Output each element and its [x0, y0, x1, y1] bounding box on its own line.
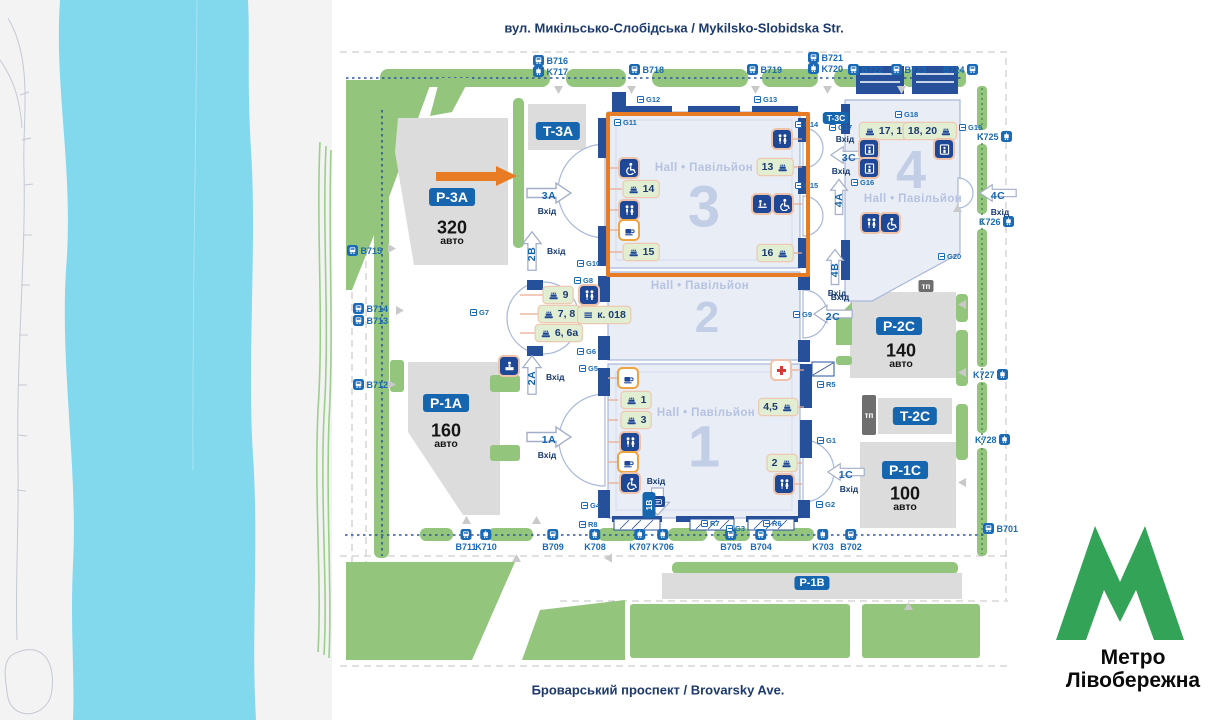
room-label: 6, 6а	[555, 327, 578, 339]
entrance-2c: 2C	[813, 303, 853, 330]
stop-label: K710	[475, 542, 497, 552]
gate-label: G4	[590, 501, 600, 510]
stop-label: B702	[840, 542, 862, 552]
stop-label: K708	[584, 542, 606, 552]
gate-icon	[581, 502, 588, 509]
stop-k717: K717	[533, 66, 568, 77]
room-4-5: 4,5	[759, 399, 797, 415]
gate-label: G5	[588, 364, 598, 373]
gate-label: G20	[947, 252, 961, 261]
highlight-arrow	[436, 166, 520, 186]
stop-k726: K726	[979, 216, 1014, 227]
banquet-hall-icon	[626, 414, 638, 426]
wc-icon	[775, 475, 793, 493]
room-k018: к. 018	[578, 307, 630, 323]
tram-stop-icon	[1001, 131, 1012, 142]
stop-b702: B702	[840, 529, 862, 552]
south-green-west	[346, 562, 515, 660]
stop-label: B724	[943, 65, 965, 75]
room-label: 9	[563, 289, 569, 301]
wc-icon	[580, 286, 598, 304]
stop-b718: B718	[629, 64, 664, 75]
substation-tp-1: тп	[919, 280, 934, 292]
tram-stop-icon	[999, 434, 1010, 445]
gate-label: R8	[588, 520, 598, 529]
stop-k706: K706	[652, 529, 674, 552]
gate-icon	[817, 381, 824, 388]
parking-p3a-badge: P-3A	[429, 188, 475, 206]
stop-label: K728	[975, 435, 997, 445]
stop-b715: B715	[347, 245, 382, 256]
entrance-3c-caption: Вхід	[836, 134, 855, 144]
stop-label: B709	[542, 542, 564, 552]
stop-label: B719	[761, 65, 783, 75]
bus-stop-icon	[353, 303, 364, 314]
gate-g5: G5	[579, 364, 598, 373]
gate-label: G12	[646, 95, 660, 104]
right-road-green	[977, 86, 987, 556]
bus-stop-icon	[547, 529, 558, 540]
gate-g7: G7	[470, 308, 489, 317]
stop-k710: K710	[475, 529, 497, 552]
bus-stop-icon	[967, 64, 978, 75]
stop-label: K707	[629, 542, 651, 552]
stop-b724: B724	[943, 64, 978, 75]
stop-label: K726	[979, 217, 1001, 227]
tram-stop-icon	[533, 66, 544, 77]
gate-icon	[577, 348, 584, 355]
entrance-label: 1B	[644, 500, 654, 511]
gate-g10: G10	[577, 259, 600, 268]
gate-r7: R7	[701, 519, 720, 528]
room-9: 9	[544, 287, 573, 303]
wc-icon	[862, 214, 880, 232]
stop-label: B714	[367, 304, 389, 314]
tram-stop-icon	[480, 529, 491, 540]
gate-icon	[726, 525, 733, 532]
elevator-icon	[935, 140, 953, 158]
gate-label: G13	[763, 95, 777, 104]
stop-label: B711	[455, 542, 476, 552]
stop-b714: B714	[353, 303, 388, 314]
map-base-layer	[0, 0, 1232, 720]
parking-p1a-cars-label: авто	[434, 438, 458, 450]
room-2: 2	[768, 455, 797, 471]
room-label: 1	[641, 394, 647, 406]
gate-label: G9	[802, 310, 812, 319]
bus-stop-icon	[891, 64, 902, 75]
bus-stop-icon	[808, 52, 819, 63]
entrance-3a-caption: Вхід	[538, 206, 557, 216]
stop-label: B722	[862, 65, 884, 75]
gate-icon	[470, 309, 477, 316]
green-bar-8	[390, 360, 404, 392]
green-bar-7	[490, 445, 520, 461]
gate-icon	[754, 96, 761, 103]
entrance-label: 4C	[991, 190, 1005, 202]
gate-icon	[763, 520, 770, 527]
stop-b719: B719	[747, 64, 782, 75]
terminal-t3a-badge: T-3A	[536, 122, 580, 140]
stop-label: B718	[643, 65, 665, 75]
gate-label: G2	[825, 500, 835, 509]
river	[59, 0, 256, 720]
gate-icon	[579, 521, 586, 528]
bus-stop-icon	[983, 523, 994, 534]
arrow-shaft	[436, 172, 498, 181]
metro-station-line1: Метро	[1101, 646, 1166, 670]
banquet-hall-icon	[543, 308, 555, 320]
banquet-hall-icon	[940, 125, 952, 137]
stop-label: B701	[997, 524, 1019, 534]
stop-b716: B716	[533, 55, 568, 66]
tram-stop-icon	[817, 529, 828, 540]
gate-label: R6	[772, 519, 782, 528]
gate-label: R7	[710, 519, 720, 528]
gate-g1: G1	[817, 436, 836, 445]
stop-k708: K708	[584, 529, 606, 552]
gate-label: G1	[826, 436, 836, 445]
entrance-label: 1A	[542, 434, 556, 446]
tram-stop-icon	[1003, 216, 1014, 227]
hall-3-highlight-box	[606, 112, 810, 277]
room-label: 4,5	[763, 401, 778, 413]
hall-4-number: 4	[896, 139, 926, 201]
tram-stop-icon	[997, 369, 1008, 380]
stop-label: B705	[720, 542, 742, 552]
cafe-icon	[619, 369, 637, 387]
gate-label: R5	[826, 380, 836, 389]
gate-icon	[574, 277, 581, 284]
entrance-2b: 2B	[521, 230, 543, 277]
room-18-20: 18, 20	[904, 123, 956, 139]
gate-g4: G4	[581, 501, 600, 510]
stop-k707: K707	[629, 529, 651, 552]
metro-station-line2: Лівобережна	[1066, 669, 1200, 693]
stop-b711: B711	[455, 529, 476, 552]
gate-label: G17	[838, 123, 852, 132]
hall-2-number: 2	[695, 293, 719, 343]
arrow-head	[496, 166, 517, 186]
cloakroom-icon	[500, 357, 518, 375]
entrance-label: 2B	[526, 246, 538, 260]
green-bar-6	[490, 375, 520, 392]
tram-stop-icon	[634, 529, 645, 540]
stop-label: B704	[750, 542, 772, 552]
parking-p3a-cars-label: авто	[440, 235, 464, 247]
room-label: к. 018	[597, 309, 626, 321]
wheelchair-access-icon	[881, 214, 899, 232]
stop-k720: K720	[808, 63, 843, 74]
gate-icon	[938, 253, 945, 260]
entrance-label: 4A	[833, 192, 845, 206]
bus-stop-icon	[533, 55, 544, 66]
stop-b722: B722	[848, 64, 883, 75]
banquet-hall-icon	[864, 125, 876, 137]
stop-b713: B713	[353, 315, 388, 326]
bus-stop-icon	[845, 529, 856, 540]
bus-stop-icon	[461, 529, 472, 540]
entrance-2a: 2A	[521, 354, 543, 401]
gate-label: G7	[479, 308, 489, 317]
stop-label: K703	[812, 542, 834, 552]
entrance-label: 3A	[542, 190, 556, 202]
room-7-8: 7, 8	[539, 306, 580, 322]
stop-label: K717	[547, 67, 569, 77]
street-name-bottom: Броварський проспект / Brovarsky Ave.	[532, 683, 785, 698]
stop-b709: B709	[542, 529, 564, 552]
bus-stop-icon	[353, 379, 364, 390]
stop-label: K725	[977, 132, 999, 142]
gate-icon	[817, 437, 824, 444]
entrance-1a-caption: Вхід	[538, 450, 557, 460]
parking-p1b-badge: P-1B	[794, 576, 829, 590]
green-bar-3	[956, 294, 968, 322]
gate-icon	[637, 96, 644, 103]
terminal-t3c-badge: T-3C	[823, 112, 849, 124]
gate-label: G18	[904, 110, 918, 119]
parking-p1c-badge: P-1C	[882, 461, 928, 479]
south-green-east2	[862, 604, 980, 658]
gate-label: G19	[968, 123, 982, 132]
hall-4-label: Hall • Павільйон	[864, 193, 962, 205]
stop-label: B715	[361, 246, 383, 256]
stop-label: K706	[652, 542, 674, 552]
parking-p1c-cars-label: авто	[893, 501, 917, 513]
stop-b701: B701	[983, 523, 1018, 534]
entrance-1c-caption: Вхід	[840, 484, 859, 494]
parking-p2c-badge: P-2C	[876, 317, 922, 335]
terminal-t2c-badge: T-2C	[893, 407, 937, 425]
cafe-icon	[619, 453, 637, 471]
gate-g16: G16	[851, 178, 874, 187]
first-aid-icon	[772, 361, 790, 379]
gate-r5: R5	[817, 380, 836, 389]
entrance-label: 1C	[839, 469, 853, 481]
south-green-strip	[672, 562, 958, 574]
room-label: 7, 8	[558, 308, 576, 320]
banquet-hall-icon	[626, 394, 638, 406]
room-1: 1	[622, 392, 651, 408]
gate-g19: G19	[959, 123, 982, 132]
entrance-label: 2A	[526, 370, 538, 384]
gate-g18: G18	[895, 110, 918, 119]
entrance-4c: 4C	[979, 182, 1017, 209]
gate-icon	[793, 311, 800, 318]
wc-icon	[621, 433, 639, 451]
gate-g20: G20	[938, 252, 961, 261]
room-label: 18, 20	[908, 125, 937, 137]
gate-g2: G2	[816, 500, 835, 509]
bus-stop-icon	[755, 529, 766, 540]
gate-label: G6	[586, 347, 596, 356]
stop-k703: K703	[812, 529, 834, 552]
gate-g9: G9	[793, 310, 812, 319]
green-bar-4	[956, 330, 968, 386]
room-label: 3	[641, 414, 647, 426]
stop-b721: B721	[808, 52, 843, 63]
stop-k727: K727	[973, 369, 1008, 380]
green-bar-2	[836, 356, 852, 365]
wheelchair-access-icon	[621, 474, 639, 492]
tram-stop-icon	[589, 529, 600, 540]
entrance-4b: 4B	[825, 247, 845, 292]
entrance-2c-caption: Вхід	[831, 292, 850, 302]
room-6-6a: 6, 6а	[536, 325, 582, 341]
stop-b723: B723	[891, 64, 926, 75]
gate-icon	[895, 111, 902, 118]
bus-stop-icon	[353, 315, 364, 326]
stop-label: K720	[822, 64, 844, 74]
gate-g8: G8	[574, 276, 593, 285]
entrance-label: 3C	[842, 152, 856, 164]
entrance-4c-caption: Вхід	[991, 207, 1010, 217]
gate-icon	[959, 124, 966, 131]
entrance-4a: 4A	[829, 177, 849, 222]
banquet-hall-icon	[548, 289, 560, 301]
entrance-label: 4B	[829, 262, 841, 276]
stop-label: B713	[367, 316, 389, 326]
gate-label: G10	[586, 259, 600, 268]
gate-g6: G6	[577, 347, 596, 356]
gate-g17: G17	[829, 123, 852, 132]
stop-b712: B712	[353, 379, 388, 390]
street-name-top: вул. Микільсько-Слобідська / Mykilsko-Sl…	[504, 21, 843, 36]
room-label: 2	[772, 457, 778, 469]
stop-label: B712	[367, 380, 389, 390]
parking-p1a-badge: P-1A	[423, 394, 469, 412]
gate-icon	[579, 365, 586, 372]
gate-icon	[851, 179, 858, 186]
gate-g3: G3	[726, 524, 745, 533]
gate-g13: G13	[754, 95, 777, 104]
banquet-hall-icon	[780, 457, 792, 469]
tram-stop-icon	[657, 529, 668, 540]
stop-k728: K728	[975, 434, 1010, 445]
hall-2-label: Hall • Павільйон	[651, 280, 749, 292]
stop-label: B721	[822, 53, 844, 63]
room-3: 3	[622, 412, 651, 428]
gate-r6: R6	[763, 519, 782, 528]
stop-label: K727	[973, 370, 995, 380]
gate-r8: R8	[579, 520, 598, 529]
gate-label: G3	[735, 524, 745, 533]
stop-label: B716	[547, 56, 569, 66]
stop-k725: K725	[977, 131, 1012, 142]
entrance-2b-caption: Вхід	[547, 246, 566, 256]
bus-stop-icon	[629, 64, 640, 75]
bus-stop-icon	[747, 64, 758, 75]
gate-icon	[577, 260, 584, 267]
parking-p2c-cars-label: авто	[889, 358, 913, 370]
gate-icon	[829, 124, 836, 131]
south-green-mid	[522, 600, 625, 660]
banquet-hall-icon	[540, 327, 552, 339]
substation-tp-2: тп	[862, 395, 876, 435]
metro-logo	[1056, 526, 1184, 640]
hall-1-number: 1	[688, 414, 720, 481]
tram-stop-icon	[808, 63, 819, 74]
south-green-east1	[630, 604, 850, 658]
gate-label: G8	[583, 276, 593, 285]
bus-stop-icon	[347, 245, 358, 256]
banquet-hall-icon	[781, 401, 793, 413]
entrance-1b: 1B	[643, 492, 656, 518]
gate-icon	[816, 501, 823, 508]
entrance-label: 2C	[826, 311, 840, 323]
elevator-icon	[860, 140, 878, 158]
office-icon	[582, 309, 594, 321]
bus-stop-icon	[848, 64, 859, 75]
elevator-icon	[860, 159, 878, 177]
entrance-2a-caption: Вхід	[546, 372, 565, 382]
gate-g12: G12	[637, 95, 660, 104]
green-bar-5	[956, 404, 968, 460]
gate-label: G16	[860, 178, 874, 187]
stop-label: B723	[905, 65, 927, 75]
stop-b704: B704	[750, 529, 772, 552]
gate-icon	[701, 520, 708, 527]
entrance-main-caption: Вхід	[647, 476, 666, 486]
